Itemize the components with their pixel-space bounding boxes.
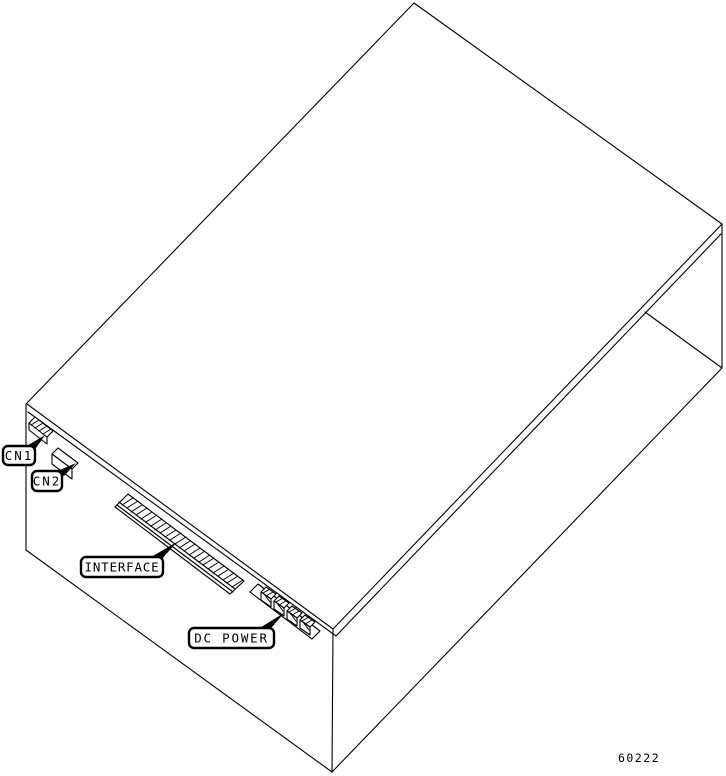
interface-label: INTERFACE xyxy=(85,560,160,575)
isometric-device-diagram: CN1 CN2 INTERFACE DC POWER 60222 xyxy=(0,0,726,776)
outer-silhouette xyxy=(26,3,722,772)
interface-connector xyxy=(115,494,244,594)
cn2-label: CN2 xyxy=(33,474,62,489)
cn1-callout: CN1 xyxy=(3,435,45,465)
top-face-front-left-edge xyxy=(27,404,333,629)
device-outline xyxy=(26,3,722,772)
cn1-label: CN1 xyxy=(5,448,34,463)
figure-number: 60222 xyxy=(618,751,660,765)
figure-canvas: CN1 CN2 INTERFACE DC POWER 60222 xyxy=(0,0,726,776)
right-end-inner-edge xyxy=(645,312,722,368)
front-corner-vertical-edge xyxy=(332,630,333,772)
dc-power-callout: DC POWER xyxy=(189,613,284,648)
top-face-front-right-edge xyxy=(333,224,722,629)
dc-power-label: DC POWER xyxy=(194,631,269,646)
interface-callout: INTERFACE xyxy=(81,542,177,577)
